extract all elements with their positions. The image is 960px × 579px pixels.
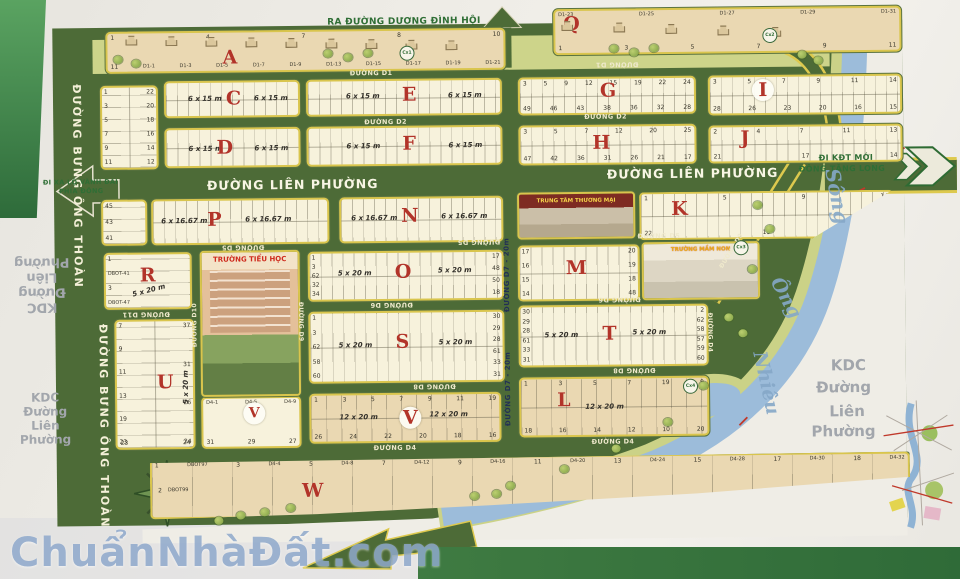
- block-letter-I: I: [752, 79, 774, 101]
- block-letter-D: D: [216, 139, 233, 158]
- area-label-line: Phường: [10, 254, 74, 270]
- plot-number: 28: [713, 105, 721, 112]
- tree-icon: [492, 490, 501, 498]
- plot-numbers-left: 13625860: [312, 316, 320, 380]
- plot-number: 11: [119, 370, 127, 376]
- block-letter-K: K: [671, 200, 688, 219]
- plot-number: 19: [119, 416, 127, 422]
- street-label: ĐƯỜNG D1: [350, 69, 393, 77]
- block-F: F6 x 15 m6 x 15 m: [306, 125, 502, 167]
- plot-number: 59: [697, 346, 705, 352]
- block-O: O5 x 20 m5 x 20 m1362323417485018: [308, 250, 505, 302]
- block-letter-H: H: [592, 134, 610, 153]
- plot-number: 43: [105, 220, 113, 226]
- plot-number: 1: [108, 257, 130, 263]
- block-M: M1716151420191848: [518, 244, 641, 301]
- plot-number: 5: [309, 461, 313, 468]
- plot-number: 30: [522, 309, 530, 315]
- plot-numbers-right: 37312624: [183, 323, 192, 445]
- plot-numbers-left: 1357911: [104, 90, 112, 166]
- direction-label: ĐI XA LỘ VÀNH ĐAI: [43, 178, 118, 187]
- block-letter-S: S: [395, 333, 409, 352]
- street-label: ĐƯỜNG LIÊN PHƯỜNG: [607, 165, 779, 182]
- plot-number: 16: [522, 263, 530, 269]
- circle-cx3: Cx3: [733, 240, 748, 255]
- plot-number: 5: [593, 380, 597, 387]
- block-letter-N: N: [401, 207, 419, 226]
- plot-number: 14: [522, 291, 530, 297]
- plot-number: 33: [523, 348, 531, 354]
- plot-number: 17: [684, 154, 692, 161]
- plot-numbers-bottom: 312927: [207, 438, 297, 446]
- plot-number: DBOT-41: [108, 271, 130, 277]
- plot-number: 16: [559, 427, 567, 434]
- plot-number: D1-31: [881, 9, 896, 16]
- plot-number: 7: [382, 460, 386, 467]
- plot-numbers-left: 302928613331: [522, 309, 530, 363]
- plot-number: 7: [399, 396, 403, 403]
- plot-number: 57: [697, 336, 705, 342]
- tree-icon: [363, 49, 372, 57]
- tree-icon: [753, 201, 762, 209]
- plot-number: D1-19: [445, 60, 460, 67]
- plot-number: 14: [147, 145, 155, 151]
- plot-number: 62: [313, 345, 321, 351]
- block-C: C6 x 15 m6 x 15 m: [164, 80, 300, 118]
- plot-number: 26: [184, 400, 192, 406]
- plot-number: 47: [524, 155, 532, 162]
- tree-icon: [214, 517, 223, 525]
- plot-number: 28: [683, 104, 691, 111]
- plot-numbers-right: 222018161412: [146, 89, 154, 165]
- plot-number: 16: [489, 432, 497, 439]
- lot-size-label: 12 x 20 m: [429, 410, 468, 418]
- plot-number: 49: [523, 105, 531, 112]
- plot-number: 62: [312, 274, 320, 280]
- direction-label: PHÍA ĐÔNG: [59, 187, 103, 195]
- lot-size-label: 5 x 20 m: [338, 269, 372, 277]
- plot-number: 28: [522, 329, 530, 335]
- area-label-line: KDC: [10, 299, 74, 315]
- lot-size-label: 5 x 20 m: [632, 328, 666, 336]
- plot-number: 18: [524, 427, 532, 434]
- plot-number: DBOT97: [187, 462, 208, 469]
- plot-number: 2: [713, 129, 717, 136]
- area-label: KDC: [831, 356, 866, 374]
- tree-icon: [132, 60, 141, 68]
- lot-size-label: 5 x 20 m: [438, 266, 472, 274]
- block-letter-O: O: [395, 263, 412, 282]
- area-label-line: Liên: [10, 269, 74, 285]
- plot-number: 1: [314, 397, 318, 404]
- plot-number: 3: [523, 128, 527, 135]
- block-letter-U: U: [157, 373, 174, 392]
- plot-number: 27: [289, 438, 297, 445]
- plot-number: 14: [593, 427, 601, 434]
- plot-number: 20: [628, 248, 636, 254]
- area-label-line: KDC: [13, 390, 77, 405]
- plot-number: DBOT99: [168, 487, 189, 494]
- street-label: ĐƯỜNG D4: [374, 444, 417, 452]
- plot-numbers-bottom: 2324: [121, 439, 191, 447]
- plot-numbers-bottom: 47423631262117: [524, 154, 692, 163]
- plot-number: 5: [723, 194, 727, 201]
- plot-number: 48: [492, 266, 500, 272]
- area-label-line: Liên: [13, 418, 77, 433]
- plot-number: 11: [456, 395, 464, 402]
- plot-number: 11: [105, 160, 113, 166]
- street-label: ĐƯỜNG D2: [364, 118, 407, 126]
- plot-number: 14: [890, 152, 898, 159]
- plot-numbers-left: 454341: [105, 204, 113, 242]
- street-label: ĐƯỜNG D4: [706, 313, 713, 353]
- plot-numbers-bottom: 181614121020: [524, 426, 704, 435]
- plot-number: 10: [493, 31, 501, 38]
- plot-number: 3: [236, 462, 240, 469]
- plot-number: 7: [104, 132, 112, 138]
- plot-number: 18: [492, 290, 500, 296]
- plot-number: 31: [207, 439, 215, 446]
- plot-number: D4-9: [284, 399, 296, 406]
- plot-number: 11: [889, 42, 897, 49]
- plot-number: 29: [248, 438, 256, 445]
- plot-number: 31: [493, 372, 501, 378]
- street-label: ĐƯỜNG D8: [613, 366, 656, 374]
- plot-number: 3: [523, 81, 527, 88]
- plot-number: 58: [313, 359, 321, 365]
- plot-number: 1: [524, 381, 528, 388]
- plot-number: 32: [312, 283, 320, 289]
- plot-number: D1-21: [485, 60, 500, 67]
- plot-number: D4-30: [810, 455, 825, 462]
- tree-icon: [748, 265, 757, 273]
- plot-number: 1: [110, 35, 114, 42]
- plot-number: 22: [384, 433, 392, 440]
- plot-numbers-right: 20191848: [628, 248, 636, 296]
- tree-icon: [724, 313, 733, 321]
- plot-number: 28: [493, 337, 501, 343]
- plot-number: 3: [104, 104, 112, 110]
- block-letter-V-school: V: [243, 402, 265, 424]
- plot-number: 41: [105, 236, 113, 242]
- plot-number: 26: [630, 154, 638, 161]
- plot-number: 32: [657, 104, 665, 111]
- block-letter-L: L: [557, 391, 571, 410]
- plot-number: 8: [397, 32, 401, 39]
- plot-number: D1-13: [326, 61, 341, 68]
- plot-number: 5: [747, 78, 751, 85]
- plot-number: 33: [493, 360, 501, 366]
- plot-number: D4-4: [268, 461, 280, 468]
- plot-number: 7: [782, 78, 786, 85]
- lot-size-label: 6 x 15 m: [254, 94, 288, 102]
- plot-number: 9: [458, 459, 462, 466]
- plot-number: D1-3: [180, 63, 192, 70]
- plot-number: 3: [343, 396, 347, 403]
- plot-number: 31: [183, 362, 191, 368]
- direction-label: ĐI KĐT MỚI: [819, 153, 874, 163]
- tree-icon: [699, 382, 708, 390]
- lot-size-label: 6 x 15 m: [448, 141, 482, 149]
- street-label: ĐƯỜNG D7 - 20m: [504, 352, 513, 426]
- street-label: ĐƯỜNG D5: [457, 238, 500, 246]
- block-G: G359121519222449464338363228: [518, 76, 696, 116]
- plot-number: 19: [634, 79, 642, 86]
- plot-number: 42: [550, 155, 558, 162]
- tree-icon: [609, 45, 618, 53]
- plot-numbers-left: 13623234: [312, 256, 320, 298]
- kdc-left-bottom: KDCĐườngLiênPhường: [13, 390, 78, 447]
- direction-label: RA ĐƯỜNG DƯƠNG ĐÌNH HỘI: [327, 16, 481, 28]
- plot-number: 29: [522, 319, 530, 325]
- plot-number: 5: [691, 44, 695, 51]
- tree-icon: [814, 56, 823, 64]
- block-I: I35791114282623201615: [708, 74, 902, 116]
- plot-number: 11: [851, 77, 859, 84]
- lot-size-label: 6 x 15 m: [188, 95, 222, 103]
- block-E: E6 x 15 m6 x 15 m: [306, 78, 502, 117]
- plot-number: 43: [577, 105, 585, 112]
- area-label-line: Phường: [13, 432, 77, 447]
- plot-number: 31: [604, 155, 612, 162]
- plot-number: 7: [301, 33, 305, 40]
- plot-number: 12: [147, 159, 155, 165]
- block-N: N6 x 16.67 m6 x 16.67 m: [339, 196, 503, 244]
- plot-number: 1: [558, 45, 562, 52]
- tree-icon: [470, 492, 479, 500]
- plot-number: 11: [534, 458, 542, 465]
- plot-number: 7: [627, 379, 631, 386]
- plot-number: 15: [522, 277, 530, 283]
- plot-number: 9: [119, 347, 127, 353]
- plot-number: 60: [313, 374, 321, 380]
- tree-icon: [798, 51, 807, 59]
- plot-numbers-top: D1-23D1-25D1-27D1-29D1-31: [558, 9, 896, 20]
- area-label: Liên: [829, 402, 865, 420]
- street-label: ĐƯỜNG D6: [598, 295, 641, 303]
- plot-number: 16: [147, 131, 155, 137]
- trade-center: TRUNG TÂM THƯƠNG MẠI: [517, 191, 635, 239]
- plot-number: 2: [158, 487, 162, 494]
- plot-number: 20: [819, 104, 827, 111]
- plot-number: 7: [118, 324, 126, 330]
- plot-number: 5: [371, 396, 375, 403]
- block-letter-P: P: [207, 211, 221, 230]
- block-P: P6 x 16.67 m6 x 16.67 m: [151, 198, 329, 246]
- plot-number: 60: [697, 356, 705, 362]
- plot-number: 11: [843, 127, 851, 134]
- plot-number: 13: [890, 127, 898, 134]
- block-V: V12 x 20 m12 x 20 m135791119262422201816: [309, 392, 502, 444]
- plot-number: 18: [853, 455, 861, 462]
- plot-number: 5: [104, 118, 112, 124]
- tree-icon: [629, 48, 638, 56]
- street-label: ĐƯỜNG D6: [370, 301, 413, 309]
- block-S: S5 x 20 m5 x 20 m13625860302928613331: [308, 310, 505, 384]
- plot-number: D4-16: [490, 459, 505, 466]
- block-H: H35712202547423631262117: [518, 124, 696, 166]
- plot-number: 24: [349, 433, 357, 440]
- plot-number: D4-20: [570, 458, 585, 465]
- plot-number: D1-9: [289, 62, 301, 69]
- plot-number: 61: [493, 349, 501, 355]
- area-label: Phường: [811, 422, 875, 441]
- plot-number: 31: [523, 357, 531, 363]
- tree-icon: [260, 508, 269, 516]
- street-label: ĐƯỜNG BƯNG ÔNG THOÀN: [96, 324, 111, 529]
- block-letter-V: V: [399, 407, 421, 429]
- plot-number: D4-28: [730, 456, 745, 463]
- map-photo: A14781011D1-1D1-3D1-5D1-7D1-9D1-13D1-15D…: [0, 0, 960, 579]
- plot-number: 36: [630, 104, 638, 111]
- plot-number: 20: [697, 426, 705, 433]
- tree-icon: [738, 329, 747, 337]
- plot-number: 9: [816, 77, 820, 84]
- kdc-left-rotated: KDCĐườngLiênPhường: [10, 254, 75, 315]
- block-letter-T: T: [602, 325, 616, 344]
- plot-numbers-right: 302928613331: [493, 314, 501, 378]
- tree-icon: [286, 504, 295, 512]
- plot-number: 46: [550, 105, 558, 112]
- plot-numbers-top: 35791114: [713, 77, 897, 86]
- plot-number: 1: [312, 256, 320, 262]
- plot-number: 24: [683, 79, 691, 86]
- plot-number: 1: [644, 195, 648, 202]
- plot-number: 19: [628, 262, 636, 268]
- plot-number: 23: [784, 105, 792, 112]
- tree-icon: [506, 482, 515, 490]
- plot-numbers-bottom: 11D1-1D1-3D1-5D1-7D1-9D1-13D1-15D1-17D1-…: [111, 60, 501, 71]
- plot-number: 30: [493, 314, 501, 320]
- plot-number: 11: [111, 64, 119, 71]
- block-letter-G: G: [600, 82, 616, 101]
- plot-number: 20: [419, 433, 427, 440]
- plot-number: 34: [312, 292, 320, 298]
- lot-size-label: 6 x 15 m: [254, 144, 288, 152]
- plot-number: 9: [564, 80, 568, 87]
- trade-center-title: TRUNG TÂM THƯƠNG MẠI: [519, 197, 633, 204]
- plot-number: 18: [147, 117, 155, 123]
- plot-number: 1: [104, 90, 112, 96]
- street-label: ĐƯỜNG D9: [297, 302, 304, 342]
- tree-icon: [765, 225, 774, 233]
- block-letter-F: F: [402, 135, 416, 154]
- plot-number: 22: [659, 79, 667, 86]
- street-label: ĐƯỜNG D11: [122, 310, 170, 318]
- block-A: A14781011D1-1D1-3D1-5D1-7D1-9D1-13D1-15D…: [105, 28, 505, 74]
- street-label: ĐƯỜNG D1: [596, 60, 639, 68]
- street-label: ĐƯỜNG D10: [191, 303, 198, 347]
- plot-number: D4-24: [650, 457, 665, 464]
- plot-number: 9: [428, 396, 432, 403]
- lot-size-label: 6 x 16.67 m: [245, 215, 291, 223]
- plot-number: 18: [454, 432, 462, 439]
- plot-number: 21: [657, 154, 665, 161]
- plot-number: 62: [697, 317, 705, 323]
- circle-cx2: Cx2: [762, 28, 777, 43]
- plot-number: D4-32: [889, 455, 904, 462]
- plot-number: 15: [694, 457, 702, 464]
- plot-numbers-top: 135791119: [314, 395, 496, 404]
- block-T: T5 x 20 m5 x 20 m30292861333126258575960: [518, 304, 709, 368]
- circle-cx4: Cx4: [683, 379, 698, 394]
- plot-number: 1: [312, 316, 320, 322]
- lot-size-label: 6 x 16.67 m: [161, 217, 207, 225]
- plot-numbers-bottom: 49464338363228: [523, 104, 691, 113]
- area-label-line: Đường: [13, 404, 77, 419]
- plot-number: 13: [614, 458, 622, 465]
- block-R: R5 x 20 m1DBOT-413DBOT-47: [104, 252, 193, 310]
- plot-number: 7: [757, 43, 761, 50]
- plot-number: D4-8: [341, 460, 353, 467]
- plot-number: 3: [625, 44, 629, 51]
- plot-number: 36: [577, 155, 585, 162]
- plot-numbers-bottom: 262422201816: [315, 432, 497, 441]
- tree-icon: [114, 56, 123, 64]
- plot-number: 7: [584, 128, 588, 135]
- plot-number: 3: [312, 330, 320, 336]
- tree-icon: [612, 445, 621, 453]
- plot-numbers-left: 17161514: [522, 249, 530, 297]
- plot-number: D4-12: [414, 460, 429, 467]
- plot-number: 7: [800, 128, 804, 135]
- plot-number: D1-25: [639, 11, 654, 18]
- plot-number: 29: [493, 325, 501, 331]
- tree-icon: [344, 53, 353, 61]
- plot-number: D1-27: [719, 10, 734, 17]
- plot-number: 19: [662, 379, 670, 386]
- plot-number: 15: [889, 104, 897, 111]
- plot-number: DBOT-47: [108, 300, 130, 306]
- block-U: U5 x 20 m2324791113192337312624: [114, 319, 195, 450]
- block-D: D6 x 15 m6 x 15 m: [164, 127, 300, 168]
- plot-number: 2: [697, 308, 705, 314]
- plot-number: 45: [105, 204, 113, 210]
- plot-number: 20: [649, 127, 657, 134]
- block-P-west: 454341: [101, 199, 147, 245]
- plot-number: 21: [714, 153, 722, 160]
- block-L: L12 x 20 m1357199181614121020: [519, 376, 710, 438]
- plot-number: D4-1: [206, 400, 218, 407]
- primary-school-title: TRƯỜNG TIỂU HỌC: [202, 255, 298, 264]
- tree-icon: [236, 511, 245, 519]
- area-label: Đường: [816, 378, 871, 397]
- plot-number: 12: [628, 426, 636, 433]
- plot-number: 20: [146, 103, 154, 109]
- street-label: ĐƯỜNG D7 - 20m: [502, 238, 511, 312]
- tree-icon: [663, 418, 672, 426]
- lot-size-label: 12 x 20 m: [339, 413, 378, 421]
- plot-number: 26: [315, 434, 323, 441]
- plot-number: 16: [854, 104, 862, 111]
- plot-number: 50: [492, 278, 500, 284]
- plot-number: 12: [615, 127, 623, 134]
- lot-size-label: 6 x 16.67 m: [441, 212, 487, 220]
- plot-number: 5: [544, 80, 548, 87]
- plot-number: D1-29: [800, 9, 815, 16]
- lot-size-label: 6 x 15 m: [448, 91, 482, 99]
- block-V-school: VD4-1D4-5D4-9312927: [201, 396, 302, 449]
- street-label: ĐƯỜNG D8: [413, 382, 456, 390]
- plot-number: 24: [184, 439, 192, 445]
- plot-number: D1-7: [253, 62, 265, 69]
- block-letter-M: M: [566, 259, 587, 278]
- street-label: ĐƯỜNG D5: [637, 232, 680, 240]
- tree-icon: [560, 465, 569, 473]
- circle-cx1: Cx1: [399, 46, 414, 61]
- plot-numbers-right: 17485018: [492, 254, 500, 296]
- plot-number: 58: [697, 327, 705, 333]
